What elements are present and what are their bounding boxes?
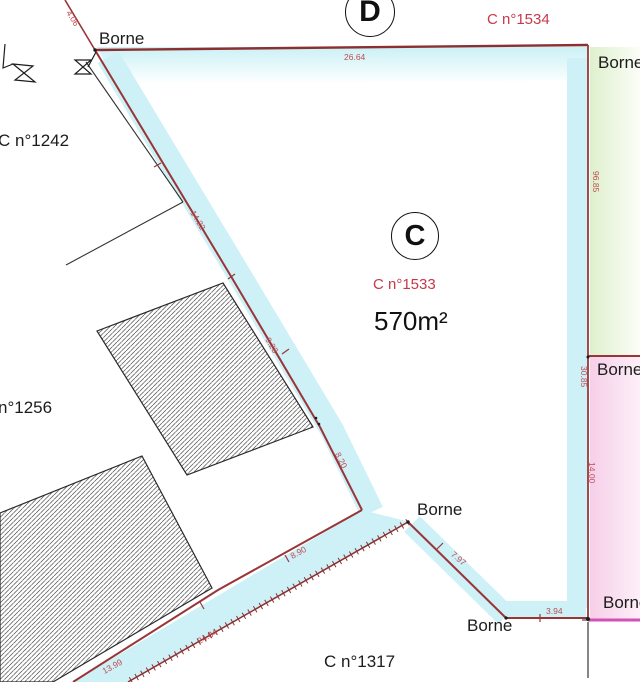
borne-label-top-left: Borne (99, 30, 144, 47)
cyan-band-top (97, 47, 588, 84)
cyan-band-bottom-right (412, 524, 506, 616)
borne-label-mid-right: Borne (597, 361, 640, 378)
survey-marker-icon-2 (3, 44, 35, 82)
neighbor-parcel-c1242-label: C n°1242 (0, 132, 69, 149)
dim-30-85-label: 30.85 (580, 366, 589, 387)
borne-label-bottom: Borne (467, 617, 512, 634)
neighbor-parcel-n1256-label: n°1256 (0, 399, 52, 416)
borne-label-bottom-right: Borne (603, 594, 640, 611)
building-hatched-1 (97, 283, 313, 475)
borne-label-top-right: Borne (598, 54, 640, 71)
boundary-top-left-diagonal (65, 0, 95, 50)
plan-drawing (0, 0, 640, 682)
pink-band-right (590, 357, 640, 619)
dim-26-64-label: 26.64 (344, 53, 365, 62)
old-boundary-line-2 (66, 202, 183, 265)
borne-label-center: Borne (417, 501, 462, 518)
parcel-c-circle-badge: C (391, 212, 439, 260)
boundary-7-97 (408, 522, 506, 618)
neighbor-parcel-c1317-label: C n°1317 (324, 653, 395, 670)
survey-marker-icon (75, 52, 96, 74)
dim-96-85-label: 96.85 (592, 171, 601, 192)
dim-3-94-label: 3.94 (546, 607, 563, 616)
green-band-right (590, 47, 640, 356)
dim-14-00-label: 14.00 (588, 462, 597, 483)
parcel-d-letter: D (359, 0, 381, 29)
parcel-c-area-label: 570m² (374, 308, 448, 334)
parcel-c-letter: C (405, 220, 426, 253)
parcel-c-number-label: C n°1533 (373, 277, 436, 292)
cadastral-plan: D C Borne Borne Borne Borne Borne Borne … (0, 0, 640, 682)
parcel-d-number-label: C n°1534 (487, 12, 550, 27)
